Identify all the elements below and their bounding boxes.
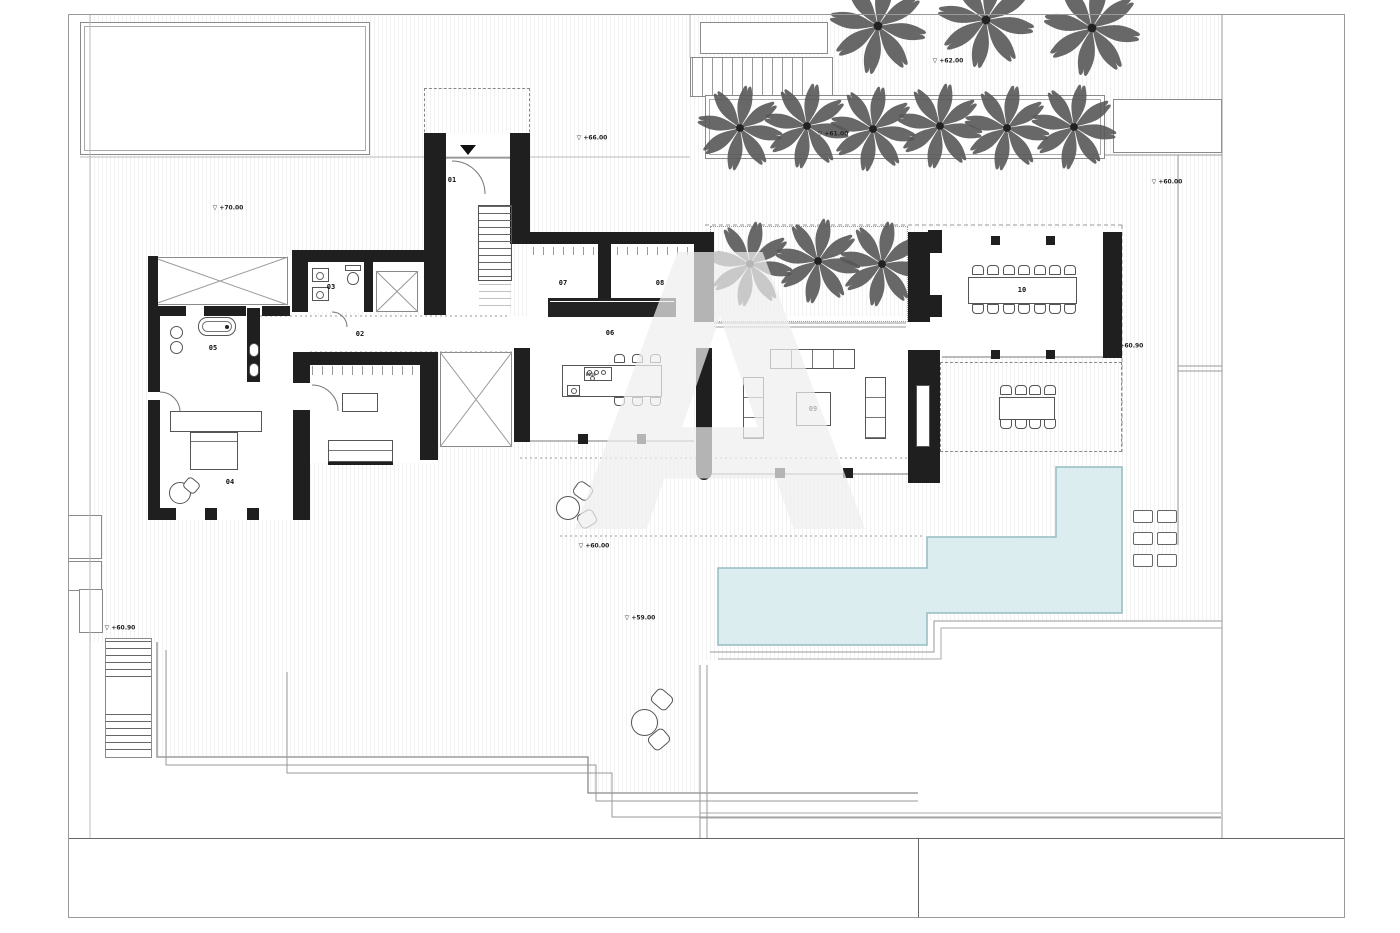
exterior-stairs-treads-upper bbox=[106, 641, 151, 682]
elevation-marker: ▽ +62.00 bbox=[933, 58, 964, 65]
outdoor-dining-table bbox=[999, 397, 1055, 420]
dining-chair bbox=[1003, 265, 1015, 275]
wall bbox=[908, 232, 930, 322]
dining-chair bbox=[972, 265, 984, 275]
sofa-right bbox=[865, 377, 886, 439]
palm-tree-icon bbox=[830, 86, 917, 173]
sink bbox=[170, 326, 183, 339]
entry-stair-treads-faint bbox=[479, 284, 511, 310]
elevation-marker: ▽ +59.00 bbox=[625, 615, 656, 622]
palm-tree-icon bbox=[697, 85, 784, 172]
wall bbox=[205, 508, 217, 520]
palm-tree-icon bbox=[964, 85, 1051, 172]
wall bbox=[148, 508, 176, 520]
island-stool bbox=[650, 354, 661, 363]
swimming-pool bbox=[718, 467, 1122, 645]
room-label-dining-room: 10 bbox=[1018, 286, 1026, 294]
elevation-marker: ▽ +60.90 bbox=[105, 625, 136, 632]
column bbox=[1046, 236, 1055, 245]
outdoor-chair bbox=[1015, 385, 1027, 395]
dining-chair bbox=[987, 304, 999, 314]
island-label: RO18 bbox=[586, 372, 596, 377]
dining-chair bbox=[987, 265, 999, 275]
entry-arrow-icon bbox=[460, 145, 476, 155]
column bbox=[843, 468, 853, 478]
sun-lounger bbox=[1133, 554, 1153, 567]
sun-lounger bbox=[1157, 510, 1177, 523]
console bbox=[328, 440, 393, 462]
outdoor-chair bbox=[1029, 385, 1041, 395]
column bbox=[637, 434, 646, 444]
sofa-left bbox=[743, 377, 764, 439]
wall bbox=[1103, 232, 1122, 358]
island-stool bbox=[632, 354, 643, 363]
desk bbox=[342, 393, 378, 412]
column bbox=[578, 434, 588, 444]
outdoor-chair bbox=[1015, 419, 1027, 429]
sun-lounger bbox=[1133, 510, 1153, 523]
wall bbox=[364, 262, 373, 312]
dining-chair bbox=[1049, 265, 1061, 275]
wall bbox=[928, 295, 942, 317]
bathtub bbox=[198, 317, 236, 336]
sink bbox=[170, 341, 183, 354]
sun-lounger bbox=[1157, 554, 1177, 567]
island-stool bbox=[650, 397, 661, 406]
sun-lounger bbox=[1133, 532, 1153, 545]
wall bbox=[510, 232, 714, 244]
wall bbox=[694, 232, 714, 322]
dining-chair bbox=[1064, 304, 1076, 314]
island-stool bbox=[614, 397, 625, 406]
column bbox=[1046, 350, 1055, 359]
palm-tree-icon bbox=[829, 0, 927, 75]
dining-chair bbox=[1049, 304, 1061, 314]
column bbox=[991, 236, 1000, 245]
outdoor-chair bbox=[1029, 419, 1041, 429]
room-label-wc: 03 bbox=[327, 283, 335, 291]
wc-toilet-bowl bbox=[347, 272, 359, 285]
bidet bbox=[249, 363, 259, 377]
column bbox=[775, 468, 785, 478]
palm-tree-icon bbox=[1031, 84, 1118, 171]
wall bbox=[293, 410, 310, 520]
dining-chair bbox=[1034, 304, 1046, 314]
wardrobe-unit bbox=[548, 298, 676, 317]
exterior-stairs-treads-lower bbox=[106, 714, 151, 756]
headboard bbox=[170, 411, 262, 432]
room-label-living-room: 09 bbox=[809, 405, 817, 413]
wall bbox=[420, 352, 438, 460]
palm-tree-icon bbox=[707, 221, 794, 308]
wall bbox=[928, 230, 942, 253]
wall bbox=[292, 250, 424, 262]
room-label-corridor: 02 bbox=[356, 330, 364, 338]
elevation-marker: ▽ +70.00 bbox=[213, 205, 244, 212]
room-label-entry-stairs: 01 bbox=[448, 176, 456, 184]
column bbox=[991, 350, 1000, 359]
elevation-marker: ▽ +60.00 bbox=[1152, 179, 1183, 186]
elevation-marker: ▽ +66.00 bbox=[577, 135, 608, 142]
dining-chair bbox=[1018, 304, 1030, 314]
fireplace-wall bbox=[908, 350, 940, 483]
wall bbox=[204, 306, 246, 316]
dining-chair bbox=[1034, 265, 1046, 275]
wall bbox=[598, 244, 611, 302]
island-sink bbox=[567, 385, 580, 396]
room-label-storage-a: 07 bbox=[559, 279, 567, 287]
outdoor-chair bbox=[1000, 419, 1012, 429]
palm-tree-icon bbox=[1043, 0, 1141, 77]
wall bbox=[510, 133, 530, 244]
entry-stair-treads bbox=[479, 206, 511, 280]
toilet bbox=[249, 343, 259, 357]
wc-toilet-tank bbox=[345, 265, 361, 271]
wall bbox=[293, 352, 438, 365]
wall bbox=[293, 352, 310, 383]
dining-chair bbox=[1003, 304, 1015, 314]
outdoor-chair bbox=[1044, 385, 1056, 395]
sofa-back bbox=[770, 349, 855, 369]
wall bbox=[262, 306, 290, 316]
room-label-bedroom: 04 bbox=[226, 478, 234, 486]
sun-lounger bbox=[1157, 532, 1177, 545]
wall bbox=[292, 262, 308, 312]
floor-plan-sheet: RO18 A 01020304050607080910▽ +70.00▽ +66… bbox=[0, 0, 1400, 933]
room-label-storage-b: 08 bbox=[656, 279, 664, 287]
island-stool bbox=[632, 397, 643, 406]
room-label-bathroom: 05 bbox=[209, 344, 217, 352]
dining-chair bbox=[972, 304, 984, 314]
wall bbox=[514, 348, 530, 442]
elevation-marker: ▽ +60.00 bbox=[579, 543, 610, 550]
island-stool bbox=[614, 354, 625, 363]
wall bbox=[148, 400, 160, 520]
wall bbox=[696, 348, 712, 480]
elevation-marker: ▽ +60.90 bbox=[1113, 343, 1144, 350]
wall bbox=[247, 508, 259, 520]
bed bbox=[190, 432, 238, 470]
wall bbox=[424, 133, 446, 315]
wc-cabinet bbox=[312, 268, 329, 282]
wall bbox=[148, 308, 160, 392]
room-label-kitchen: 06 bbox=[606, 329, 614, 337]
dining-chair bbox=[1018, 265, 1030, 275]
elevation-marker: ▽ +61.00 bbox=[818, 131, 849, 138]
wall bbox=[148, 256, 158, 306]
dining-chair bbox=[1064, 265, 1076, 275]
outdoor-chair bbox=[1000, 385, 1012, 395]
outdoor-chair bbox=[1044, 419, 1056, 429]
